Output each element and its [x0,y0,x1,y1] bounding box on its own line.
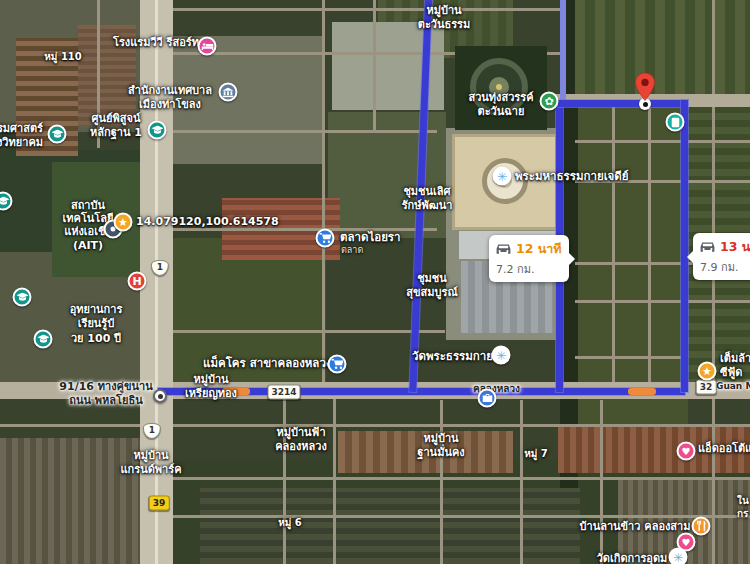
badge-row: 12 นาที [495,239,562,259]
origin-core [158,394,163,399]
label-moo-110: หมู่ 110 [44,50,82,63]
traffic-segment-east [628,388,656,395]
city-hall-poi[interactable] [219,83,238,102]
route-segment-north-continuation[interactable] [560,0,566,102]
label-coordinates: 14.079120,100.614578 [136,215,279,229]
label-origin-road: 91/16 ทางคู่ขนานถนน พหลโยธิน [59,380,152,409]
label-wat-dhammakaya: วัดพระธรรมกาย [412,349,493,364]
teal-poi[interactable] [666,113,685,132]
route-39-shield: 39 [149,496,170,511]
wat-dhammakaya-poi[interactable]: ✳ [492,346,511,365]
car-icon [495,243,512,256]
graduation-cap-icon [51,130,63,139]
label-aiyara-sub: ตลาด [341,245,363,257]
label-tawantham: หมู่บ้านตะวันธรรม [418,4,471,33]
selected-route-distance: 7.2 กม. [495,260,562,278]
label-moo-7: หมู่ 7 [524,447,548,460]
park-memorial-dot [496,84,502,90]
label-wat-kerd: วัดเกิดการอุดม [597,552,668,564]
school-poi[interactable] [48,125,67,144]
label-puey-park: อุทยานการเรียนรู้ป๋วย 100 ปี [70,303,123,346]
label-suksomboon: ชุมชนสุขสมบูรณ์ [406,272,457,301]
graduation-cap-icon [16,293,28,302]
star-icon: ★ [118,217,128,228]
bank-icon [223,87,234,97]
pin-icon [634,72,656,102]
temlan-star-poi[interactable]: ★ [698,362,717,381]
label-ad-auto: แอ็ดออโต้แอร์ [698,442,750,456]
graduation-cap-icon [151,126,163,135]
aiyara-market-poi[interactable] [316,229,335,248]
label-vv-resort: โรงแรมวีวี รีสอร์ท [113,36,199,50]
route-segment-east[interactable] [681,100,688,392]
label-edge-fragment: ในกร [737,494,749,520]
wat-kerd-poi[interactable]: ✳ [669,548,688,564]
heart-icon: ♥ [682,537,691,547]
restaurant-poi[interactable] [692,517,711,536]
car-icon [699,241,716,254]
forensic-center-poi[interactable] [148,121,167,140]
route-3214-shield: 3214 [267,385,300,400]
alternate-route-duration: 13 นาที [720,237,750,257]
badge-row: 13 นาที [699,237,750,257]
makro-poi[interactable] [328,355,347,374]
label-guan-m: Guan M [716,381,750,393]
gov-office-poi[interactable] [478,389,497,408]
route-origin-marker[interactable] [153,389,167,403]
storefront-icon [671,117,679,127]
dharma-wheel-icon: ✳ [497,170,507,182]
ad-auto-poi[interactable]: ♥ [677,442,696,461]
label-forensic: ศูนย์พิสูจน์หลักฐาน 1 [90,112,142,141]
label-rianthong: หมู่บ้านเหรียญทอง [185,373,237,402]
route-badge-selected[interactable]: 12 นาที 7.2 กม. [489,235,569,282]
dharma-wheel-icon: ✳ [673,551,683,563]
label-thanmankong: หมู่บ้านฐานมั่นคง [417,432,464,461]
satellite-map[interactable]: 12 นาที 7.2 กม. 13 นาที 7.9 กม. ★ [0,0,750,564]
hospital-icon: H [132,276,141,287]
cetiya-poi[interactable]: ✳ [493,167,512,186]
route-32-shield: 32 [696,380,717,395]
label-cetiya: พระมหาธรรมกายเจดีย์ [515,169,629,184]
label-fah-khlong-luang: หมู่บ้านฟ้าคลองหลวง [275,426,327,455]
label-park: สวนทุ่งสวรรค์ตะวันฉาย [468,91,533,120]
star-icon: ★ [702,366,712,377]
route-segment-top[interactable] [558,100,688,107]
park-poi[interactable]: ✿ [540,92,559,111]
learning-park-poi-2[interactable] [34,330,53,349]
hotel-poi[interactable] [198,37,217,56]
alternate-route-distance: 7.9 กม. [699,258,750,276]
route-badge-alternate[interactable]: 13 นาที 7.9 กม. [693,233,750,280]
briefcase-icon [482,394,492,403]
destination-pin[interactable] [634,72,656,106]
hospital-poi[interactable]: H [128,272,147,291]
label-aiyara-market: ตลาดไอยรา [340,230,401,245]
label-lertsak-community: ชุมชนเลิศรักษ์พัฒนา [402,185,453,214]
label-grandpark: หมู่บ้านแกรนด์พาร์ค [120,449,181,478]
heart-icon: ♥ [682,446,691,456]
bed-icon [201,42,213,51]
label-lankhao: บ้านลานข้าว คลองสาม [579,520,690,534]
label-moo-6: หมู่ 6 [278,516,302,529]
graduation-cap-icon [0,197,9,206]
selected-route-duration: 12 นาที [516,239,562,259]
saved-star-poi[interactable]: ★ [114,213,133,232]
label-temlan-seafood: เต็มล้านซีฟู้ด [720,352,750,381]
learning-park-poi[interactable] [13,288,32,307]
shopping-cart-icon [331,359,343,370]
dharma-wheel-icon: ✳ [496,349,506,361]
label-makro: แม็คโคร สาขาคลองหลวง [203,356,332,371]
label-thakhlong: สำนักงานเทศบาลเมืองท่าโขลง [128,84,212,113]
graduation-cap-icon [37,335,49,344]
restaurant-icon [696,521,706,532]
shopping-cart-icon [319,233,331,244]
label-school: ธรรมศาสตร์คลองหลวงวิทยาคม [0,122,43,151]
flower-icon: ✿ [544,96,553,107]
